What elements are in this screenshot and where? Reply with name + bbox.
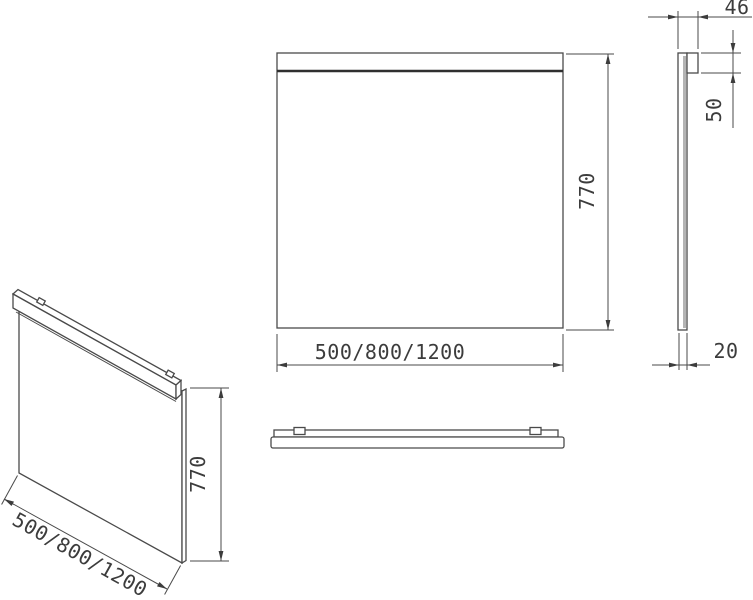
arrowhead-up: [731, 73, 736, 83]
front-height-dimension: 770: [566, 54, 614, 330]
arrowhead-right: [669, 363, 679, 368]
side-rail-height-dimension: 50: [701, 30, 741, 128]
arrowhead-down: [606, 320, 611, 330]
arrowhead-down: [731, 43, 736, 53]
arrowhead-right: [553, 363, 563, 368]
mounting-clip-left: [294, 428, 305, 435]
arrowhead-left: [687, 363, 697, 368]
side-thickness-dimension: 20: [652, 333, 739, 370]
arrowhead-up: [606, 54, 611, 64]
mounting-clip-right: [530, 428, 541, 435]
side-depth-dimension: 46: [648, 0, 752, 49]
arrowhead-upleft: [4, 499, 14, 506]
side-depth-label: 46: [724, 0, 749, 19]
arrowhead-downright: [157, 582, 167, 589]
arrowhead-up: [219, 388, 224, 398]
iso-height-dimension: 770: [186, 388, 229, 561]
extension-line: [2, 476, 18, 505]
side-view: 46 50 20: [648, 0, 752, 370]
arrowhead-left: [277, 363, 287, 368]
technical-drawing: 770 500/800/1200 46: [0, 0, 753, 600]
mirror-front-outline: [277, 53, 563, 328]
front-width-label: 500/800/1200: [315, 340, 466, 364]
iso-view: 770 500/800/1200: [2, 290, 229, 600]
arrowhead-right: [668, 15, 678, 20]
rail-side-outline: [687, 53, 698, 73]
mirror-top-outline: [271, 437, 564, 448]
extension-line: [165, 566, 181, 595]
front-view: 770 500/800/1200: [277, 53, 614, 372]
rail-top-outline: [274, 430, 558, 437]
arrowhead-left: [698, 15, 708, 20]
front-width-dimension: 500/800/1200: [277, 334, 563, 372]
front-height-label: 770: [575, 172, 599, 210]
top-view: [271, 428, 564, 449]
drawing-svg: 770 500/800/1200 46: [0, 0, 753, 600]
arrowhead-down: [219, 551, 224, 561]
side-thickness-label: 20: [713, 339, 738, 363]
iso-height-label: 770: [186, 455, 210, 493]
side-rail-height-label: 50: [702, 97, 726, 122]
